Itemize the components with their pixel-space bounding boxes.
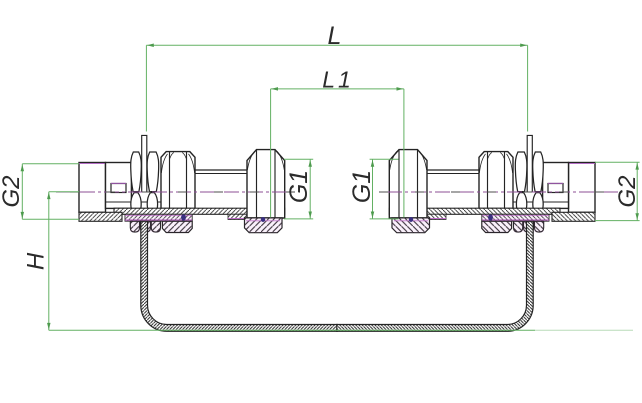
svg-text:G2: G2 [0, 175, 25, 207]
svg-text:L1: L1 [322, 67, 354, 93]
svg-text:G1: G1 [285, 170, 313, 203]
svg-text:G1: G1 [348, 170, 376, 203]
svg-text:G2: G2 [614, 175, 641, 207]
svg-text:L: L [328, 22, 342, 50]
svg-text:H: H [23, 252, 50, 270]
